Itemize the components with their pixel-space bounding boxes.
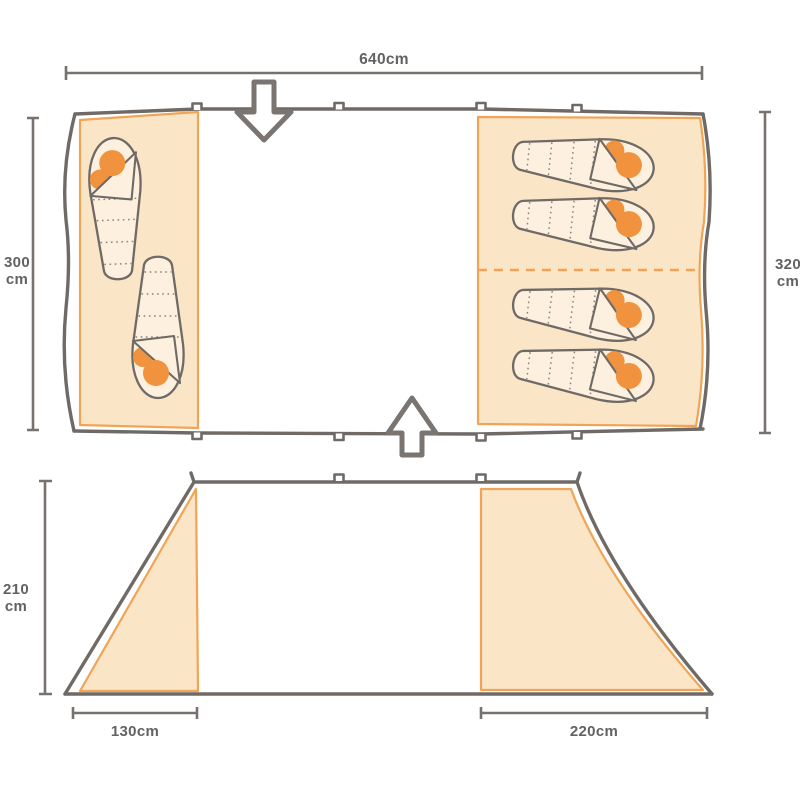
tent-outer-wall-left [64, 114, 75, 431]
dimension-line [39, 481, 52, 694]
right-depth-unit-label: cm [777, 273, 799, 290]
dimension-line [27, 118, 39, 430]
side-profile-view: 210 cm 130cm 220cm [3, 473, 712, 740]
porch-width-label: 130cm [111, 723, 159, 740]
dimension-total-width: 640cm [66, 51, 702, 80]
entrance-arrow-up-icon [388, 398, 436, 455]
dimension-porch-width: 130cm [73, 707, 197, 740]
dimension-height: 210 cm [3, 481, 52, 694]
dimension-line [66, 66, 702, 80]
floor-plan-top-view: 640cm 300 cm 320 cm [4, 51, 800, 455]
dimension-line [759, 112, 771, 433]
dimension-line [73, 707, 197, 719]
dimension-right-depth: 320 cm [759, 112, 800, 433]
porch-panel [80, 489, 198, 691]
left-depth-value-label: 300 [4, 254, 30, 271]
dimension-bedroom-width: 220cm [481, 707, 707, 740]
dimension-left-depth: 300 cm [4, 118, 39, 430]
entrance-arrow-down-icon [237, 82, 291, 140]
pole-notch-row-ridge [335, 475, 486, 482]
ridge-line [194, 473, 580, 482]
left-depth-unit-label: cm [6, 271, 28, 288]
right-depth-value-label: 320 [775, 256, 800, 273]
bedroom-width-label: 220cm [570, 723, 618, 740]
diagram-canvas: 640cm 300 cm 320 cm 210 cm [0, 0, 800, 800]
dimension-line [481, 707, 707, 719]
height-value-label: 210 [3, 581, 29, 598]
total-width-label: 640cm [359, 51, 409, 68]
height-unit-label: cm [5, 598, 27, 615]
tent-dimensions-diagram: 640cm 300 cm 320 cm 210 cm [0, 0, 800, 800]
